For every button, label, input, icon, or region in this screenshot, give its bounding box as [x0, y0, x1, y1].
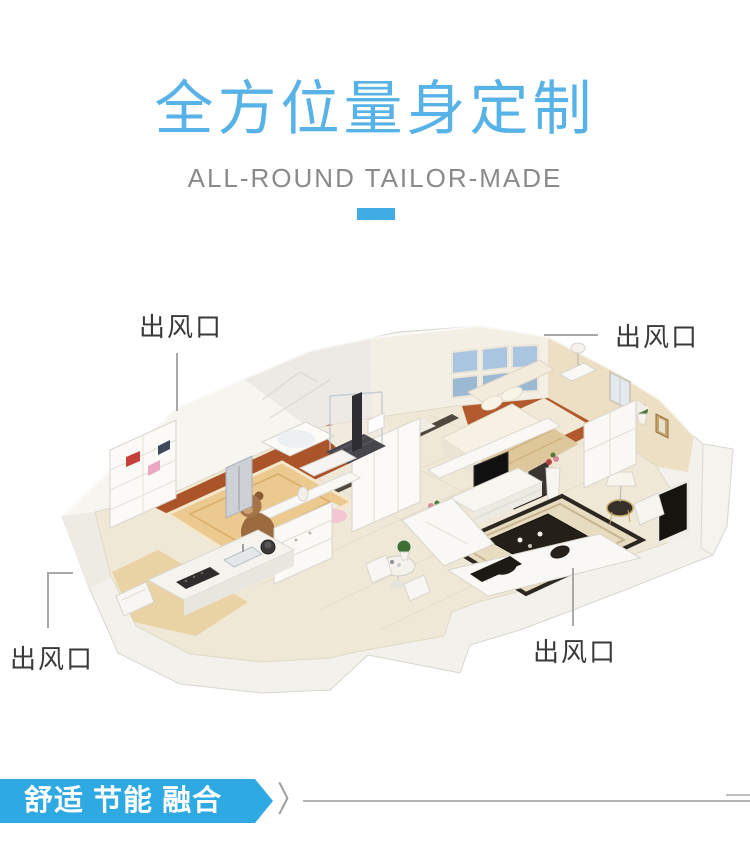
callout-bottom-center: 出风口 [533, 632, 617, 669]
table-lamp [571, 343, 585, 353]
callout-line [544, 334, 598, 336]
chevron-icon: 〉 [277, 781, 305, 819]
callout-line [176, 353, 178, 411]
floor-plan-illustration [0, 0, 750, 859]
footer-line [303, 800, 750, 802]
callout-bottom-left: 出风口 [10, 639, 94, 676]
callout-line [47, 572, 49, 628]
callout-line [572, 568, 574, 626]
callout-top-right: 出风口 [615, 317, 699, 354]
footer-ribbon: 舒适 节能 融合 [0, 779, 273, 823]
footer-line-accent [726, 794, 750, 796]
decor-bust [298, 487, 308, 501]
callout-top-left: 出风口 [139, 307, 223, 344]
callout-line [47, 572, 73, 574]
promo-page: 全方位量身定制 ALL-ROUND TAILOR-MADE [0, 0, 750, 859]
